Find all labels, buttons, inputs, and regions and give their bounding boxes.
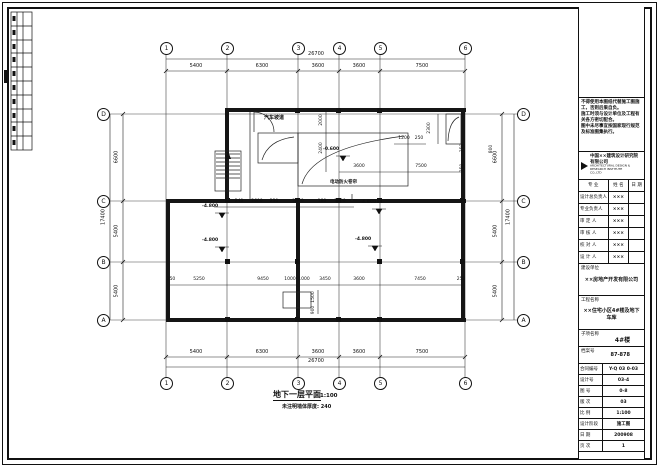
note-line: 不得使用本图纸代替施工图施工，否则后果自负。: [579, 100, 644, 112]
grid-bubble-top-1: 1: [160, 42, 173, 55]
dim-ramp-height: 2300: [428, 122, 433, 133]
dim-row-left: 6600: [115, 151, 120, 164]
grid-bubble-top-4: 4: [333, 42, 346, 55]
dim-interior: 1000: [284, 278, 295, 283]
grid-bubble-left-D: D: [97, 108, 110, 121]
info-value: 03-4: [603, 375, 644, 385]
grid-bubble-bottom-3: 3: [292, 377, 305, 390]
grid-bubble-right-B: B: [517, 256, 530, 269]
info-value: 1:100: [603, 408, 644, 418]
ramp-label: 汽车坡道: [264, 116, 284, 121]
info-row: 日 期 200908: [579, 430, 644, 441]
plan-note: 未注明墙体厚度: 240: [282, 405, 331, 410]
sign-row: 专业负责人 ×××: [579, 204, 644, 216]
project-block: 工程名称 ××住宅小区4#楼及地下车库: [579, 296, 644, 330]
info-value: 施工图: [603, 419, 644, 429]
info-row: 页 次 1: [579, 441, 644, 452]
grid-bubble-left-B: B: [97, 256, 110, 269]
archive-label: 档案号: [579, 347, 597, 355]
note-line: 图中未尽事宜按国家现行规范及标准图集执行。: [579, 124, 644, 136]
dim-col-top: 5400: [190, 64, 203, 69]
sign-name: ×××: [609, 252, 630, 263]
sign-date-cell: [629, 228, 644, 239]
info-value: 0-8: [603, 386, 644, 396]
dim-col-top: 3600: [353, 64, 366, 69]
sign-row: 设计总负责人 ×××: [579, 192, 644, 204]
dim-side: 2000: [320, 114, 325, 125]
grid-bubble-left-A: A: [97, 314, 110, 327]
info-row: 设计号 03-4: [579, 375, 644, 386]
dim-interior: 240: [235, 200, 244, 205]
sign-name: ×××: [609, 204, 630, 215]
grid-bubble-top-3: 3: [292, 42, 305, 55]
info-row: 设计阶段 施工图: [579, 419, 644, 430]
dim-col-bottom: 3600: [312, 350, 325, 355]
subitem-label: 子项名称: [579, 330, 601, 338]
sign-row: 校 对 人 ×××: [579, 240, 644, 252]
dim-interior: 3450: [319, 278, 330, 283]
dim-col-bottom: 6300: [256, 350, 269, 355]
info-label: 比 例: [579, 408, 603, 418]
sign-row: 审 核 人 ×××: [579, 228, 644, 240]
plan-title: 地下一层平面: [273, 391, 321, 401]
dim-interior: 3050: [292, 200, 303, 205]
sign-name: ×××: [609, 216, 630, 227]
dim-row-left: 5400: [115, 285, 120, 298]
info-row: 图 号 0-8: [579, 386, 644, 397]
sign-date-cell: [629, 252, 644, 263]
level-marker-value: -4.800: [355, 238, 371, 243]
company-name-en: ARCHITECTURAL DESIGN & RESEARCH INSTITUT…: [590, 165, 634, 175]
dim-interior: 7500: [415, 165, 426, 170]
dim-interior: 250: [457, 278, 466, 283]
dim-interior: 2600: [251, 200, 262, 205]
sign-role: 设计总负责人: [579, 192, 609, 203]
info-row: 版 次 03: [579, 397, 644, 408]
grid-bubble-right-C: C: [517, 195, 530, 208]
grid-bubble-bottom-2: 2: [221, 377, 234, 390]
dim-row-right: 5400: [494, 225, 499, 238]
sign-row: 设 计 人 ×××: [579, 252, 644, 264]
dim-col-top: 7500: [416, 64, 429, 69]
grid-bubble-bottom-5: 5: [374, 377, 387, 390]
sign-date-cell: [629, 204, 644, 215]
sign-name: ×××: [609, 228, 630, 239]
subitem-block: 子项名称 4#楼: [579, 330, 644, 347]
dim-col-total-bottom: 26700: [308, 359, 324, 364]
dim-row-total-right: 17400: [507, 209, 512, 225]
client-block: 建设单位 ××房地产开发有限公司: [579, 264, 644, 296]
dim-col-total-top: 26700: [308, 52, 324, 57]
project-label: 工程名称: [579, 296, 644, 304]
grid-bubble-top-6: 6: [459, 42, 472, 55]
sign-role: 审 核 人: [579, 228, 609, 239]
grid-bubble-bottom-1: 1: [160, 377, 173, 390]
dim-row-right: 6600: [494, 151, 499, 164]
info-label: 图 号: [579, 386, 603, 396]
sign-table-header: 专 业 姓 名 日 期: [579, 180, 644, 192]
grid-bubble-right-D: D: [517, 108, 530, 121]
note-line: 施工时须与设计单位及工程有关各方密切配合。: [579, 112, 644, 124]
dim-pit: 900: [312, 306, 317, 315]
dim-ramp-width: 250: [415, 137, 424, 142]
title-block: 不得使用本图纸代替施工图施工，否则后果自负。 施工时须与设计单位及工程有关各方密…: [578, 7, 645, 459]
dim-interior: 5250: [193, 278, 204, 283]
info-label: 设计阶段: [579, 419, 603, 429]
dim-interior: 3600: [353, 165, 364, 170]
dim-side: 250: [461, 144, 466, 153]
company-row: 中国××建筑设计研究院有限公司 ARCHITECTURAL DESIGN & R…: [579, 152, 644, 180]
level-marker-value: -4.800: [202, 205, 218, 210]
grid-bubble-top-2: 2: [221, 42, 234, 55]
title-block-empty-panel: [579, 7, 644, 98]
sign-role: 审 定 人: [579, 216, 609, 227]
info-value: 1: [603, 441, 644, 451]
level-marker-value: -4.800: [360, 201, 376, 206]
info-value: Y-Q 03 0-03: [603, 364, 644, 374]
dim-col-top: 3600: [312, 64, 325, 69]
dim-interior: 7450: [414, 278, 425, 283]
sign-role: 校 对 人: [579, 240, 609, 251]
sign-date-cell: [629, 240, 644, 251]
dim-interior: 2400: [334, 200, 345, 205]
dim-row-left: 5400: [115, 225, 120, 238]
sign-name: ×××: [609, 240, 630, 251]
info-label: 合同编号: [579, 364, 603, 374]
client-label: 建设单位: [579, 264, 644, 272]
sign-header-cell: 姓 名: [609, 180, 630, 191]
sign-date-cell: [629, 192, 644, 203]
level-marker-value: -4.800: [202, 239, 218, 244]
info-label: 设计号: [579, 375, 603, 385]
dim-interior: 250: [167, 278, 176, 283]
client-name: ××房地产开发有限公司: [579, 276, 644, 283]
dim-col-bottom: 5400: [190, 350, 203, 355]
grid-bubble-left-C: C: [97, 195, 110, 208]
info-value: 03: [603, 397, 644, 407]
sign-date-cell: [629, 216, 644, 227]
dim-ramp-width: 1200: [398, 137, 409, 142]
plan-scale: 1:100: [320, 394, 338, 400]
dim-col-top: 6300: [256, 64, 269, 69]
sign-name: ×××: [609, 192, 630, 203]
sign-header-cell: 专 业: [579, 180, 609, 191]
dim-col-bottom: 3600: [353, 350, 366, 355]
sign-role: 专业负责人: [579, 204, 609, 215]
project-name: ××住宅小区4#楼及地下车库: [579, 307, 644, 321]
sign-role: 设 计 人: [579, 252, 609, 263]
grid-bubble-bottom-6: 6: [459, 377, 472, 390]
dim-interior: 230: [270, 200, 279, 205]
dim-interior: 1000: [298, 278, 309, 283]
cad-drawing-sheet: 1 2 3 4 5 6 1 2 3 4 5 6 D C B A D C B A …: [0, 0, 659, 467]
dim-row-total-left: 17400: [102, 209, 107, 225]
dim-pit: 1500: [312, 291, 317, 302]
grid-bubble-top-5: 5: [374, 42, 387, 55]
title-block-notes: 不得使用本图纸代替施工图施工，否则后果自负。 施工时须与设计单位及工程有关各方密…: [579, 98, 644, 152]
info-label: 页 次: [579, 441, 603, 451]
dim-interior: 9450: [257, 278, 268, 283]
dim-side: 800: [490, 145, 495, 154]
grid-bubble-bottom-4: 4: [333, 377, 346, 390]
dim-interior: 180: [318, 200, 327, 205]
level-marker-value: -0.600: [323, 148, 339, 153]
info-table: 合同编号 Y-Q 03 0-03 设计号 03-4 图 号 0-8 版 次 03…: [579, 364, 644, 452]
info-value: 200908: [603, 430, 644, 440]
info-row: 合同编号 Y-Q 03 0-03: [579, 364, 644, 375]
archive-block: 档案号 87-878: [579, 347, 644, 364]
dim-side: 250: [461, 164, 466, 173]
sign-table: 设计总负责人 ××× 专业负责人 ××× 审 定 人 ××× 审 核 人 ×××…: [579, 192, 644, 264]
company-logo-icon: [581, 162, 588, 170]
columns: [225, 108, 465, 322]
info-row: 比 例 1:100: [579, 408, 644, 419]
info-label: 日 期: [579, 430, 603, 440]
dim-interior: 3600: [353, 278, 364, 283]
info-label: 版 次: [579, 397, 603, 407]
dimension-ticks: [121, 69, 504, 359]
dim-row-right: 5400: [494, 285, 499, 298]
sign-row: 审 定 人 ×××: [579, 216, 644, 228]
dim-col-bottom: 7500: [416, 350, 429, 355]
sign-header-cell: 日 期: [629, 180, 644, 191]
revision-strip-marks: [4, 16, 16, 145]
grid-bubble-right-A: A: [517, 314, 530, 327]
fire-curtain-label: 电动防火卷帘: [330, 181, 357, 186]
